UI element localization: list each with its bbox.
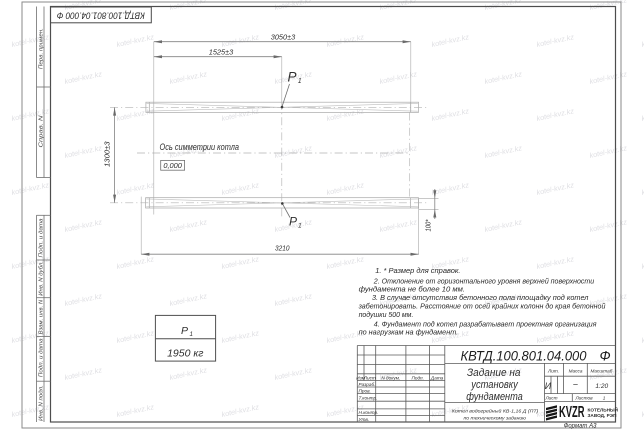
svg-text:kotel-kvz.kz: kotel-kvz.kz [589, 69, 628, 86]
svg-text:1525±3: 1525±3 [209, 47, 234, 56]
svg-text:P: P [288, 70, 297, 85]
svg-text:kotel-kvz.kz: kotel-kvz.kz [326, 254, 365, 271]
svg-text:Формат А3: Формат А3 [564, 424, 597, 430]
svg-text:Котел водогрейный КВ-1,16 Д (П: Котел водогрейный КВ-1,16 Д (ПТ) [452, 407, 539, 414]
svg-text:Масштаб: Масштаб [590, 369, 612, 374]
svg-text:kotel-kvz.kz: kotel-kvz.kz [326, 32, 365, 49]
svg-text:Подп. и дата: Подп. и дата [39, 218, 45, 257]
svg-text:kotel-kvz.kz: kotel-kvz.kz [11, 180, 50, 197]
svg-text:Т.контр.: Т.контр. [359, 395, 378, 400]
svg-text:kotel-kvz.kz: kotel-kvz.kz [221, 180, 260, 197]
svg-text:1: 1 [190, 331, 193, 338]
svg-text:kotel-kvz.kz: kotel-kvz.kz [116, 328, 155, 345]
svg-text:kotel-kvz.kz: kotel-kvz.kz [536, 32, 575, 49]
svg-text:Лист: Лист [544, 395, 557, 400]
svg-text:kotel-kvz.kz: kotel-kvz.kz [536, 180, 575, 197]
svg-text:kotel-kvz.kz: kotel-kvz.kz [221, 254, 260, 271]
svg-text:kotel-kvz.kz: kotel-kvz.kz [221, 402, 260, 419]
svg-text:Ось симметрии котла: Ось симметрии котла [160, 142, 240, 152]
svg-text:kotel-kvz.kz: kotel-kvz.kz [484, 143, 523, 160]
svg-text:И: И [545, 381, 552, 391]
svg-text:1. * Размер для справок.: 1. * Размер для справок. [375, 266, 460, 275]
svg-text:Взам. инв. N: Взам. инв. N [39, 300, 45, 335]
svg-text:КОТЕЛЬНЫЙ: КОТЕЛЬНЫЙ [588, 405, 619, 412]
svg-text:3050±3: 3050±3 [271, 32, 296, 41]
svg-text:P: P [181, 325, 188, 337]
svg-text:kotel-kvz.kz: kotel-kvz.kz [169, 69, 208, 86]
svg-text:kotel-kvz.kz: kotel-kvz.kz [326, 180, 365, 197]
svg-text:Справ. N: Справ. N [39, 115, 45, 147]
svg-text:kotel-kvz.kz: kotel-kvz.kz [169, 365, 208, 382]
svg-text:Н.контр.: Н.контр. [359, 410, 379, 415]
svg-text:kotel-kvz.kz: kotel-kvz.kz [64, 291, 103, 308]
svg-text:Подп.: Подп. [411, 375, 423, 380]
svg-text:фундамента: фундамента [466, 391, 523, 403]
svg-text:Инв. N дубл.: Инв. N дубл. [39, 261, 45, 296]
svg-text:KVZR: KVZR [559, 404, 585, 421]
svg-text:КВТД.100.801.04.000 Ф: КВТД.100.801.04.000 Ф [57, 11, 145, 21]
svg-text:kotel-kvz.kz: kotel-kvz.kz [641, 32, 644, 49]
svg-text:Инв. N подл.: Инв. N подл. [39, 385, 45, 421]
svg-text:Подп. и дата: Подп. и дата [39, 338, 45, 377]
svg-text:kotel-kvz.kz: kotel-kvz.kz [64, 365, 103, 382]
svg-text:P: P [289, 215, 297, 229]
svg-text:Задание на: Задание на [467, 367, 521, 379]
svg-text:kotel-kvz.kz: kotel-kvz.kz [274, 143, 313, 160]
svg-text:Лист: Лист [363, 375, 376, 380]
svg-text:установку: установку [470, 379, 519, 391]
svg-text:kotel-kvz.kz: kotel-kvz.kz [274, 291, 313, 308]
svg-text:kotel-kvz.kz: kotel-kvz.kz [169, 217, 208, 234]
svg-text:kotel-kvz.kz: kotel-kvz.kz [64, 69, 103, 86]
svg-text:kotel-kvz.kz: kotel-kvz.kz [64, 217, 103, 234]
svg-text:kotel-kvz.kz: kotel-kvz.kz [641, 328, 644, 345]
svg-text:kotel-kvz.kz: kotel-kvz.kz [116, 180, 155, 197]
svg-text:1950 кг: 1950 кг [167, 347, 203, 359]
svg-text:3210: 3210 [275, 243, 290, 252]
svg-text:kotel-kvz.kz: kotel-kvz.kz [536, 254, 575, 271]
svg-text:1: 1 [298, 78, 302, 85]
svg-text:0,000: 0,000 [163, 161, 182, 170]
svg-text:подушки 500 мм.: подушки 500 мм. [359, 310, 414, 319]
svg-text:100*: 100* [424, 219, 433, 232]
svg-text:Дата: Дата [430, 375, 444, 380]
svg-text:kotel-kvz.kz: kotel-kvz.kz [116, 32, 155, 49]
svg-text:Листов: Листов [574, 395, 593, 400]
svg-text:по нагрузкам на фундамент.: по нагрузкам на фундамент. [359, 327, 459, 336]
svg-text:kotel-kvz.kz: kotel-kvz.kz [641, 402, 644, 419]
svg-text:kotel-kvz.kz: kotel-kvz.kz [431, 32, 470, 49]
svg-text:Пров.: Пров. [359, 388, 371, 393]
svg-text:Ф: Ф [600, 347, 611, 363]
svg-text:ЗАВОД, РЭП: ЗАВОД, РЭП [588, 413, 618, 418]
svg-text:kotel-kvz.kz: kotel-kvz.kz [641, 106, 644, 123]
svg-text:1: 1 [603, 395, 606, 400]
svg-text:N докум.: N докум. [381, 375, 400, 380]
svg-text:kotel-kvz.kz: kotel-kvz.kz [169, 291, 208, 308]
svg-text:Утв.: Утв. [359, 417, 370, 422]
svg-text:kotel-kvz.kz: kotel-kvz.kz [589, 143, 628, 160]
svg-text:kotel-kvz.kz: kotel-kvz.kz [641, 180, 644, 197]
svg-text:КВТД.100.801.04.000: КВТД.100.801.04.000 [461, 347, 587, 363]
svg-text:kotel-kvz.kz: kotel-kvz.kz [221, 328, 260, 345]
svg-text:kotel-kvz.kz: kotel-kvz.kz [116, 402, 155, 419]
svg-text:kotel-kvz.kz: kotel-kvz.kz [484, 69, 523, 86]
svg-text:kotel-kvz.kz: kotel-kvz.kz [641, 254, 644, 271]
svg-text:1: 1 [298, 223, 302, 230]
svg-text:kotel-kvz.kz: kotel-kvz.kz [484, 217, 523, 234]
svg-text:kotel-kvz.kz: kotel-kvz.kz [379, 217, 418, 234]
svg-text:kotel-kvz.kz: kotel-kvz.kz [431, 106, 470, 123]
svg-text:kotel-kvz.kz: kotel-kvz.kz [379, 69, 418, 86]
svg-text:kotel-kvz.kz: kotel-kvz.kz [379, 143, 418, 160]
svg-text:по техническому заданию: по техническому заданию [464, 415, 527, 421]
svg-text:1:20: 1:20 [595, 383, 608, 390]
svg-text:Масса: Масса [569, 369, 583, 374]
svg-text:Лит.: Лит. [547, 369, 559, 374]
svg-text:kotel-kvz.kz: kotel-kvz.kz [589, 217, 628, 234]
svg-text:kotel-kvz.kz: kotel-kvz.kz [431, 180, 470, 197]
svg-text:kotel-kvz.kz: kotel-kvz.kz [536, 106, 575, 123]
svg-text:1300±3: 1300±3 [103, 141, 112, 167]
svg-text:kotel-kvz.kz: kotel-kvz.kz [274, 365, 313, 382]
svg-text:–: – [572, 380, 578, 389]
svg-text:Разраб.: Разраб. [359, 382, 376, 387]
svg-text:kotel-kvz.kz: kotel-kvz.kz [536, 328, 575, 345]
svg-text:Перв. примен.: Перв. примен. [39, 28, 45, 69]
svg-text:kotel-kvz.kz: kotel-kvz.kz [116, 254, 155, 271]
svg-text:kotel-kvz.kz: kotel-kvz.kz [64, 143, 103, 160]
